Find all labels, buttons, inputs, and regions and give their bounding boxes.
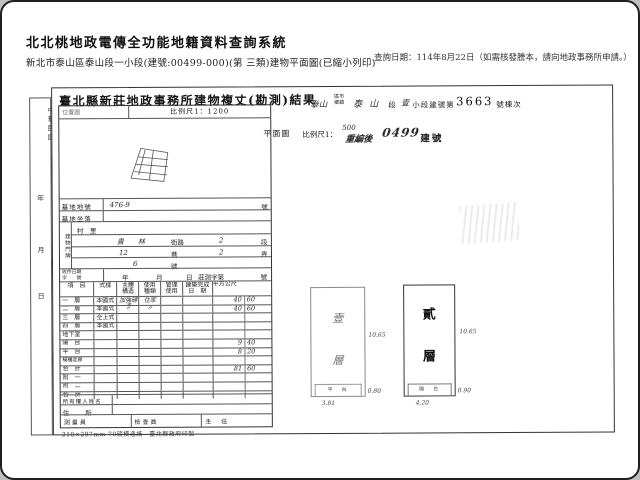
surveyor-label: 測量員 bbox=[61, 415, 132, 428]
area-table-row: 二 層本國式〃〃4060 bbox=[60, 304, 271, 314]
area-table-row: 騎樓走廊 bbox=[60, 355, 271, 365]
second-floor-char-1: 貳 bbox=[404, 303, 454, 322]
terrace-height-dim: 0.80 bbox=[368, 388, 381, 395]
base-location-label: 基地坐落 bbox=[60, 211, 104, 221]
section-handwritten: 泰山 bbox=[353, 97, 385, 110]
subsection-label: 小段建號第 bbox=[412, 99, 455, 110]
first-floor-height-dim: 10.65 bbox=[368, 332, 385, 339]
balcony-height-dim: 0.90 bbox=[458, 387, 471, 394]
receipt-label: 收件日期 字 號 bbox=[60, 269, 104, 281]
area-table-row: 附 一 bbox=[61, 373, 272, 383]
first-floor-width-dim: 3.81 bbox=[322, 400, 335, 407]
base-lot-label: 基地地號 bbox=[60, 199, 104, 210]
form-table: 位置圖 比例尺1：1200 bbox=[58, 104, 273, 428]
location-map-scale: 比例尺1：1200 bbox=[129, 105, 270, 118]
survey-form: 臺北縣新莊地政事務所建物複丈(勘測)結果 泰山 區市鄉鎮 泰山 段 壹 小段建號… bbox=[51, 84, 615, 435]
district-handwritten: 泰山 bbox=[310, 98, 327, 110]
first-floor-char-1: 壹 bbox=[311, 310, 364, 326]
area-table-row: 陽 台940 bbox=[60, 338, 271, 348]
query-date: 查詢日期：114年8月22日（如需核發謄本，請向地政事務所申請。） bbox=[374, 51, 632, 63]
checker-label: 檢查員 bbox=[131, 415, 202, 428]
location-sketch bbox=[121, 141, 183, 191]
margin-year-label: 年 bbox=[31, 193, 51, 203]
subsection-handwritten: 壹 bbox=[401, 98, 409, 109]
area-table-row: 合 計8160 bbox=[61, 364, 272, 374]
first-floor-char-2: 層 bbox=[311, 352, 364, 368]
renumber-label: 重編後 bbox=[344, 132, 373, 145]
left-margin-strip: 中華民國 年 月 日 簽之 bbox=[29, 97, 53, 435]
owner-label: 所有權人姓名 bbox=[61, 395, 113, 404]
second-floor-width-dim: 4.20 bbox=[416, 399, 429, 406]
address-label: 住 所 bbox=[61, 405, 113, 414]
balcony-strip: 陽 台 bbox=[408, 383, 452, 395]
door-plate-group: 建物門牌 村 里 貴林 街路 2 段 12 巷 2 弄 bbox=[60, 220, 271, 269]
second-floor-char-2: 層 bbox=[404, 345, 454, 364]
street-section-value: 2 bbox=[219, 236, 224, 244]
plan-scale-value: 500 bbox=[342, 124, 355, 132]
app-window: 北北桃地政電傳全功能地籍資料查詢系統 新北市泰山區泰山段一小段(建號:00499… bbox=[0, 0, 640, 480]
area-table-row: 地下室 bbox=[60, 330, 271, 340]
building-number: 3663 bbox=[456, 94, 493, 108]
signoff-row: 測量員 檢查員 主 任 bbox=[61, 413, 272, 428]
base-lot-value: 476-9 bbox=[110, 201, 130, 209]
system-title: 北北桃地政電傳全功能地籍資料查詢系統 bbox=[26, 32, 287, 51]
area-table-row: 三 層仝上式 bbox=[60, 312, 271, 322]
document-subtitle: 新北市泰山區泰山段一小段(建號:00499-000)(第 三類)建物平面圖(已縮… bbox=[26, 55, 376, 69]
area-table-row: 附 二 bbox=[61, 381, 272, 391]
second-floor-height-dim: 10.65 bbox=[459, 328, 476, 335]
receipt-row: 收件日期 字 號 年 月 日 莊測字第 號 bbox=[60, 267, 271, 281]
renumber-suffix: 建號 bbox=[420, 130, 443, 144]
faint-stamp bbox=[459, 202, 520, 244]
area-table-row: 四 層本國式 bbox=[60, 321, 271, 331]
plan-scale-label: 比例尺1： bbox=[302, 129, 337, 140]
alley-value: 2 bbox=[219, 248, 224, 256]
village-row: 村 里 bbox=[71, 221, 271, 234]
section-label: 段 bbox=[388, 100, 396, 111]
lane-value: 12 bbox=[119, 249, 128, 257]
building-number-suffix: 號棟次 bbox=[496, 99, 522, 110]
area-table: 項 目式樣主體 構造使用 種類管理 使用建築完成 日 期平方公尺一 層本國式加強… bbox=[60, 280, 272, 399]
district-unit-stamp: 區市鄉鎮 bbox=[334, 95, 344, 107]
margin-day-label: 日 bbox=[31, 291, 51, 301]
terrace-strip: 平 台 bbox=[315, 384, 362, 396]
location-map-label: 位置圖 bbox=[59, 106, 129, 118]
renumber-value: 0499 bbox=[381, 125, 420, 139]
stamp-line-2: 鄉鎮 bbox=[334, 100, 344, 106]
area-table-row: 一 層本國式加強磚造住家4060 bbox=[60, 295, 271, 305]
scanned-document: 中華民國 年 月 日 簽之 臺北縣新莊地政事務所建物複丈(勘測)結果 泰山 區市… bbox=[29, 84, 619, 439]
area-table-header: 項 目式樣主體 構造使用 種類管理 使用建築完成 日 期平方公尺 bbox=[60, 280, 271, 296]
base-lot-row: 基地地號 476-9 號 bbox=[60, 197, 271, 210]
paper-spec-note: 210×297mm 70磅模造紙 臺北縣政府印製 bbox=[62, 429, 195, 439]
location-map-header: 位置圖 比例尺1：1200 bbox=[59, 105, 270, 118]
floor-plan-first: 壹 層 平 台 bbox=[310, 287, 366, 397]
margin-month-label: 月 bbox=[31, 245, 51, 255]
location-map-area bbox=[59, 117, 270, 198]
area-table-row: 平 台820 bbox=[60, 347, 271, 357]
chief-label: 主 任 bbox=[202, 414, 272, 427]
floor-plan-second: 貳 層 陽 台 bbox=[403, 284, 456, 396]
